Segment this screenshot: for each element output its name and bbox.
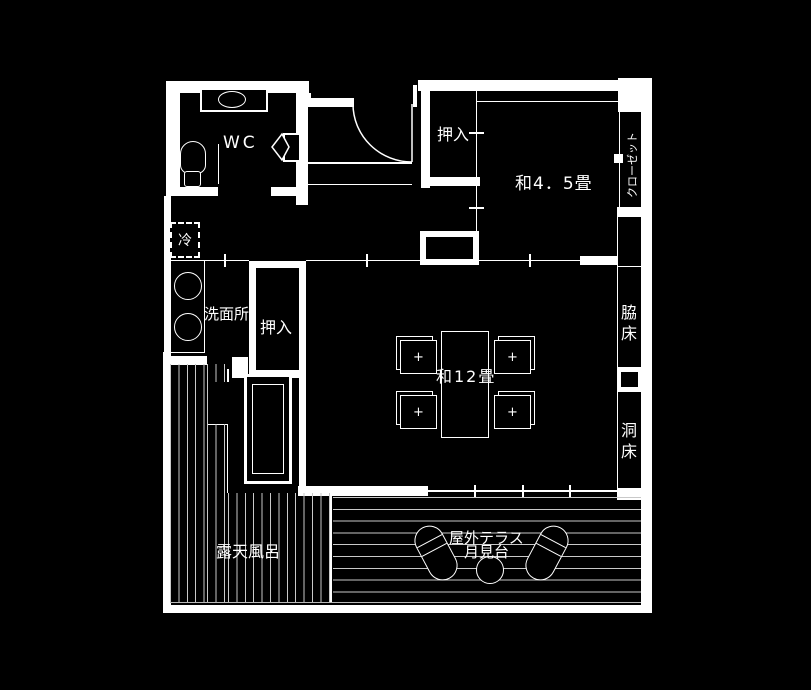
tick-hall-opening xyxy=(366,254,368,267)
tick-oshiire-upper xyxy=(469,132,484,134)
line-alcove-front xyxy=(617,217,618,488)
line-deck-bottom-edge xyxy=(170,602,641,603)
chair-icon xyxy=(494,395,531,429)
line-washroom-top xyxy=(168,260,249,261)
basin-circle-icon xyxy=(174,313,202,341)
bathtub-inner-icon xyxy=(252,384,284,474)
wall-corner-top-right-block xyxy=(618,78,652,112)
tick-window-2 xyxy=(522,485,524,497)
room-label-tsukimidai: 月見台 xyxy=(464,541,509,562)
wall-oshiire-upper-left xyxy=(421,85,430,188)
bifold-door-frame-icon xyxy=(283,133,301,162)
toilet-icon xyxy=(180,141,206,174)
wall-top-right xyxy=(418,80,652,91)
toilet-base-icon xyxy=(184,171,201,187)
refrigerator-label: 冷 xyxy=(178,230,192,250)
wall-oshiire-upper-bottom xyxy=(421,177,480,186)
line-wc-divider xyxy=(218,144,219,184)
tick-hall-right xyxy=(469,207,484,209)
wall-entry-jamb xyxy=(413,85,417,107)
wall-bottom xyxy=(163,605,652,613)
tick-washroom-door xyxy=(224,254,226,267)
floor-plan: 冷 WC 押入 和4．5畳 クローゼット 洗面所 押入 和12畳 脇床 洞床 露… xyxy=(0,0,811,690)
refrigerator-icon: 冷 xyxy=(170,222,200,258)
room-label-rotenburo: 露天風呂 xyxy=(216,538,280,562)
room-label-closet: クローゼット xyxy=(624,128,638,202)
basin-oval-icon xyxy=(218,91,246,108)
room-label-washitsu-12: 和12畳 xyxy=(436,363,496,387)
wall-closet-bottom xyxy=(617,207,643,217)
tick-room45-opening xyxy=(529,254,531,267)
wall-room12-left xyxy=(299,261,306,496)
wall-left-upper xyxy=(166,81,180,196)
wall-entry-recess xyxy=(302,98,354,107)
line-genkan-step-upper xyxy=(304,162,412,164)
bath-platform-clear xyxy=(208,382,228,424)
wall-wc-bottom-left xyxy=(166,187,218,196)
chair-icon xyxy=(494,340,531,374)
tokonoma-box xyxy=(420,231,479,265)
alcove-divider-niche xyxy=(621,372,638,387)
wall-right xyxy=(641,78,652,613)
line-alcove-top xyxy=(617,266,641,267)
basin-circle-icon xyxy=(174,272,202,300)
room-label-wc: WC xyxy=(223,133,258,153)
chair-icon xyxy=(400,395,437,429)
line-genkan-step-lower xyxy=(304,184,412,185)
room-label-wakidoko: 脇床 xyxy=(620,302,638,344)
chair-icon xyxy=(400,340,437,374)
line-laundry-box-bottom xyxy=(170,352,204,353)
tick-window-1 xyxy=(474,485,476,497)
wall-oshiire-lower-top xyxy=(249,261,306,268)
room-label-oshiire-upper: 押入 xyxy=(437,121,469,145)
room-label-washroom: 洗面所 xyxy=(204,303,249,324)
wall-left-mid xyxy=(164,196,171,356)
line-hall-room12 xyxy=(306,260,420,261)
tick-window-3 xyxy=(569,485,571,497)
wall-wc-bottom-right xyxy=(271,187,308,196)
rotenburo-deck-left xyxy=(170,364,207,602)
line-room45-window xyxy=(477,101,618,102)
room-label-washitsu-45: 和4．5畳 xyxy=(515,169,593,194)
wall-room45-bottom-thick xyxy=(580,256,618,265)
room-label-oshiire-lower: 押入 xyxy=(260,314,292,338)
wall-oshiire-lower-left xyxy=(249,261,256,378)
room-label-horadoko: 洞床 xyxy=(620,420,638,462)
door-knob-icon xyxy=(614,154,623,163)
